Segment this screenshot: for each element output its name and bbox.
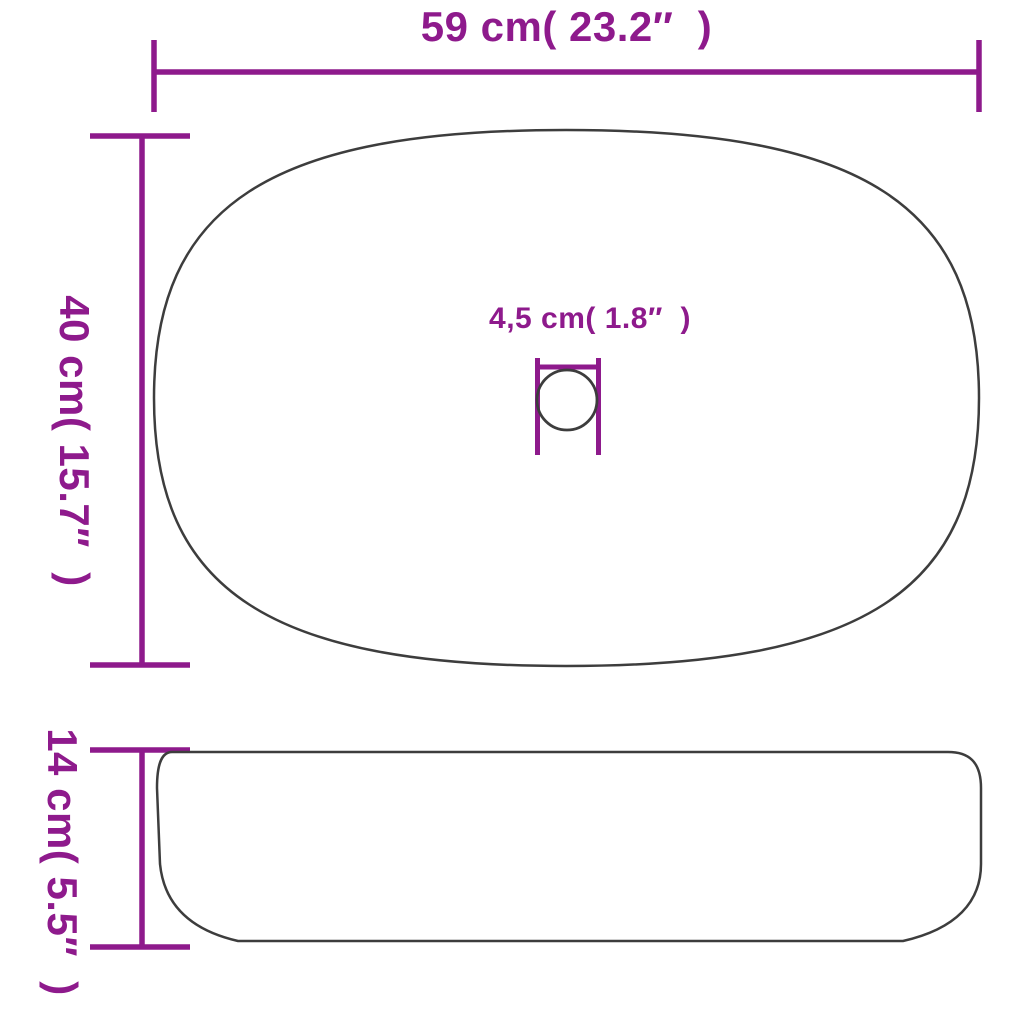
height-dimension-line: [90, 750, 190, 947]
side-view-outline: [157, 752, 981, 941]
drain-hole-circle: [537, 370, 597, 430]
height-dimension-label: 14 cm( 5.5″ ): [39, 652, 85, 1024]
drain-dimension-bracket: [535, 358, 601, 455]
drain-dimension-label: 4,5 cm( 1.8″ ): [440, 296, 740, 342]
diagram-canvas: [0, 0, 1024, 1024]
dimension-diagram: 59 cm( 23.2″ ) 40 cm( 15.7″ ) 4,5 cm( 1.…: [0, 0, 1024, 1024]
width-dimension-label: 59 cm( 23.2″ ): [154, 4, 979, 50]
depth-dimension-line: [90, 136, 190, 665]
width-dimension-line: [154, 40, 979, 112]
top-view-outline: [154, 130, 979, 666]
depth-dimension-label: 40 cm( 15.7″ ): [51, 231, 97, 651]
